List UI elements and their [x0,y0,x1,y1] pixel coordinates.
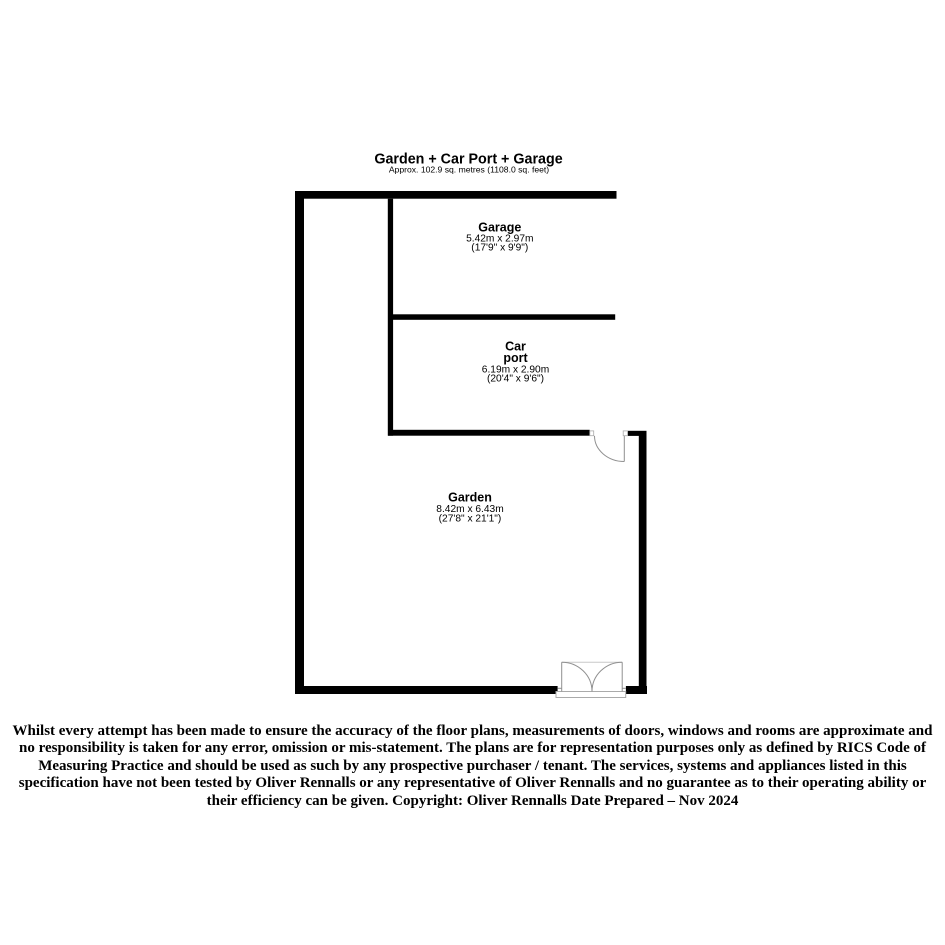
svg-text:(27'8" x 21'1"): (27'8" x 21'1") [439,514,502,525]
svg-text:Approx. 102.9 sq. metres (1108: Approx. 102.9 sq. metres (1108.0 sq. fee… [389,164,549,174]
svg-text:Garden: Garden [448,491,492,505]
svg-text:(17'9" x 9'9"): (17'9" x 9'9") [471,242,528,253]
svg-text:Garage: Garage [478,221,521,235]
svg-text:(20'4" x 9'6"): (20'4" x 9'6") [487,374,544,385]
svg-text:port: port [503,351,528,365]
